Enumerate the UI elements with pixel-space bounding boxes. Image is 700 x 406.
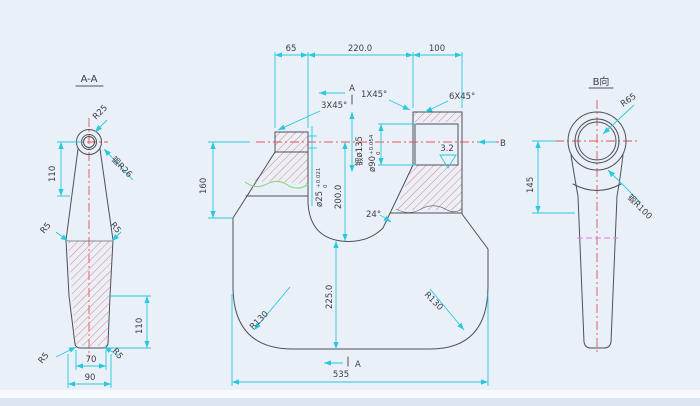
chamfer-1x45-label: 1X45° bbox=[361, 90, 387, 100]
dim-535-label: 535 bbox=[333, 370, 349, 380]
bottom-strip-blue bbox=[0, 398, 700, 406]
bore90-tol-lower: 0 bbox=[376, 151, 382, 155]
dim-65-label: 65 bbox=[286, 44, 297, 54]
section-mark-bottom-label: A bbox=[355, 360, 361, 370]
boss-cap-hatch bbox=[413, 112, 462, 122]
dim-70-label: 70 bbox=[86, 355, 97, 365]
bottom-strip-light bbox=[0, 390, 700, 398]
bore90-tol-upper: +0.054 bbox=[369, 134, 375, 155]
dim-145-label: 145 bbox=[526, 177, 536, 193]
dim-110-lower-label: 110 bbox=[135, 318, 145, 334]
dim-100-label: 100 bbox=[429, 44, 445, 54]
chamfer-3x45-label: 3X45° bbox=[321, 101, 347, 111]
dim-160-label: 160 bbox=[199, 178, 209, 194]
section-mark-top-label: A bbox=[349, 84, 355, 94]
cad-drawing-page: A-A 110 110 70 90 R25 锻R26 R5 bbox=[0, 0, 700, 406]
dim-200-label: 200.0 bbox=[334, 185, 344, 209]
bore25-tol-lower: 0 bbox=[323, 184, 329, 188]
bore25-tol-upper: +0.021 bbox=[316, 168, 322, 188]
bore25-label: ø25 bbox=[315, 191, 325, 207]
dim-110-upper-label: 110 bbox=[48, 166, 58, 182]
dim-220-label: 220.0 bbox=[348, 44, 372, 54]
view-b-mark-label: B bbox=[500, 139, 506, 149]
b-view-title: B向 bbox=[593, 75, 610, 88]
angle-24-label: 24° bbox=[366, 210, 381, 220]
chamfer-6x45-label: 6X45° bbox=[449, 92, 475, 102]
roughness-label: 3.2 bbox=[440, 144, 454, 154]
forge-dia135-label: 锻ø135 bbox=[354, 136, 365, 166]
bore90-label: ø90 bbox=[368, 156, 378, 172]
cad-drawing-canvas: A-A 110 110 70 90 R25 锻R26 R5 bbox=[0, 0, 700, 406]
dim-225-label: 225.0 bbox=[325, 285, 335, 309]
section-aa-title: A-A bbox=[81, 74, 98, 85]
dim-90-label: 90 bbox=[85, 373, 96, 383]
